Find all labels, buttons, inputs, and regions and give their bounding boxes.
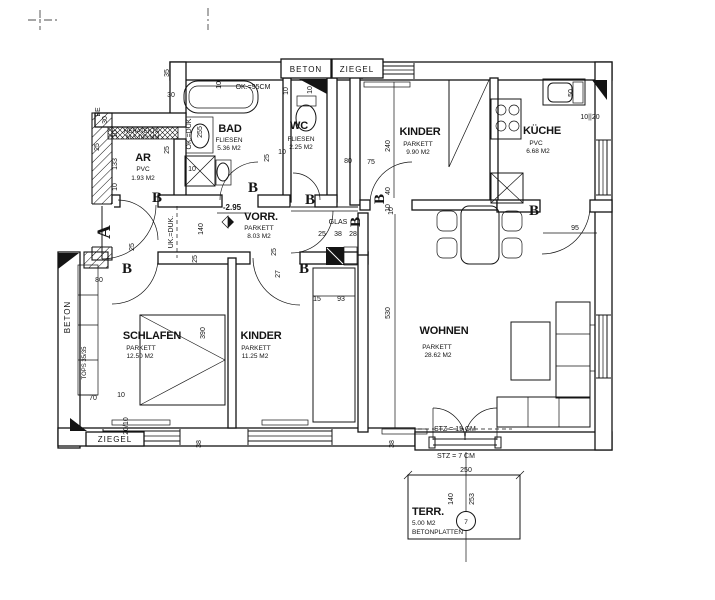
- wall: [170, 62, 186, 115]
- wall-material-label: TOPS 35/35: [82, 346, 88, 380]
- annotation-ok-duk: OK.=DUK: [186, 118, 193, 149]
- wall-material-label: BETON: [290, 65, 322, 74]
- annotation-glas: GLAS: [329, 219, 348, 226]
- coffee-table: [511, 322, 550, 380]
- dim-label: 255: [197, 126, 204, 138]
- bed: [313, 268, 355, 422]
- wall: [590, 200, 612, 212]
- dim-label: 38: [334, 231, 342, 238]
- level-marker-icon: [228, 216, 234, 228]
- wall: [358, 252, 368, 432]
- dim-label: 25: [192, 255, 199, 263]
- dim-label: 10: [278, 149, 286, 156]
- room-floor: PVC: [136, 166, 150, 173]
- chair: [437, 238, 457, 258]
- radiator: [262, 420, 308, 425]
- door-arc-glas: [291, 211, 333, 253]
- room-name: BAD: [218, 123, 241, 135]
- wall: [360, 200, 370, 210]
- dim-label: 27: [275, 270, 282, 278]
- wall: [158, 195, 222, 207]
- annotation-stz15: STZ = 15 CM: [434, 426, 476, 433]
- window-wohnen: [596, 315, 611, 378]
- dim-label: 30: [167, 92, 175, 99]
- dim-label: 80: [95, 277, 103, 284]
- window-kinder: [248, 429, 332, 445]
- dim-label: 80: [344, 158, 352, 165]
- room-floor: PARKETT: [244, 225, 274, 232]
- dim-label: 133: [112, 158, 119, 170]
- room-area: 8.03 M2: [247, 233, 271, 240]
- door-label: B: [122, 261, 132, 277]
- dim-label: 140: [448, 493, 455, 505]
- room-name: WC: [290, 120, 308, 132]
- room-floor: PARKETT: [126, 345, 156, 352]
- wall-brick-hatched: [84, 252, 108, 268]
- wall-material-label: ZIEGEL: [340, 65, 374, 74]
- room-name: KINDER: [400, 126, 441, 138]
- burner: [509, 105, 519, 115]
- dim-label: 530: [385, 307, 392, 319]
- wall-material-label: BETON: [63, 301, 72, 333]
- room-area: 28.62 M2: [424, 352, 451, 359]
- window-kueche: [596, 140, 611, 195]
- dim-label: 50: [568, 89, 575, 97]
- dim-label: 240: [385, 140, 392, 152]
- bidet: [217, 163, 229, 181]
- burner: [509, 121, 519, 131]
- floor-plan-drawing: BETON ZIEGEL ZIEGEL BETON TOPS 35/35 BE …: [0, 0, 715, 600]
- dim-label: 10: [216, 81, 223, 89]
- floor-plan-page: BETON ZIEGEL ZIEGEL BETON TOPS 35/35 BE …: [0, 0, 715, 600]
- radiator: [112, 420, 170, 425]
- room-floor: PARKETT: [241, 345, 271, 352]
- room-floor: FLIESEN: [287, 136, 314, 143]
- dim-label: 25: [264, 154, 271, 162]
- dim-label: 10: [283, 87, 290, 95]
- door-arc-schlafen: [112, 258, 158, 304]
- room-floor: FLIESEN: [215, 137, 242, 144]
- wall: [58, 252, 80, 448]
- room-floor: PVC: [529, 140, 543, 147]
- dim-label: 253: [469, 493, 476, 505]
- wall-material-label: BE: [95, 107, 102, 117]
- room-area: 6.68 M2: [526, 148, 550, 155]
- annotation-level: -2.95: [223, 203, 242, 212]
- dim-label: 10: [112, 130, 119, 138]
- room-name: KÜCHE: [523, 124, 561, 137]
- room-floor: BETONPLATTEN: [412, 529, 463, 536]
- room-name: TERR.: [412, 506, 444, 518]
- dim-label: 28: [349, 231, 357, 238]
- dim-label: 10: [188, 166, 196, 173]
- dim-label: 10: [112, 183, 119, 191]
- chair: [502, 211, 522, 231]
- terrace-number: 7: [464, 519, 468, 526]
- door-label: B: [305, 192, 315, 208]
- wall: [228, 258, 236, 428]
- dim-label: 10: [388, 207, 395, 215]
- room-area: 9.90 M2: [406, 149, 430, 156]
- room-area: 2.25 M2: [289, 144, 313, 151]
- sofa: [556, 302, 590, 398]
- door-label: B: [348, 217, 364, 227]
- door-label: B: [299, 261, 309, 277]
- dim-label: 40: [385, 187, 392, 195]
- insulation-label: M 3 100 MM: [126, 135, 159, 141]
- dim-label: 10||20: [580, 114, 599, 121]
- dim-label: 10: [307, 86, 314, 94]
- dim-label: 38: [389, 440, 396, 448]
- dim-label: 75: [367, 159, 375, 166]
- wall: [315, 195, 337, 207]
- room-area: 5.00 M2: [412, 520, 436, 527]
- dim-label: 25: [94, 143, 101, 151]
- wall: [258, 195, 290, 207]
- radiator: [590, 325, 595, 371]
- annotation-stz7: STZ = 7 CM: [437, 453, 475, 460]
- dim-label: 25: [164, 146, 171, 154]
- dim-label: 25: [129, 243, 136, 251]
- dim-label: 38: [196, 440, 203, 448]
- dim-label: 70: [89, 395, 97, 402]
- sofa: [497, 397, 590, 427]
- chair: [502, 238, 522, 258]
- wardrobe-diagonal: [449, 80, 489, 167]
- room-area: 11.25 M2: [242, 353, 269, 360]
- wall: [350, 62, 360, 205]
- wall-material-label: ZIEGEL: [98, 435, 132, 444]
- dim-label: 250: [460, 467, 472, 474]
- room-area: 12.50 M2: [126, 353, 153, 360]
- dim-label: 15: [313, 296, 321, 303]
- room-name: AR: [135, 152, 151, 164]
- wall: [412, 200, 497, 210]
- room-name: KINDER: [241, 330, 282, 342]
- dim-label: 10: [117, 392, 125, 399]
- room-area: 5.36 M2: [217, 145, 241, 152]
- dining-table: [461, 206, 499, 264]
- door-arc-ar: [118, 200, 158, 240]
- wall: [327, 78, 337, 202]
- level-marker-icon: [222, 216, 228, 228]
- room-floor: PARKETT: [403, 141, 433, 148]
- wall-niche: [78, 265, 98, 395]
- dim-label: 140: [198, 223, 205, 235]
- dim-label: 95: [571, 225, 579, 232]
- room-floor: PARKETT: [422, 344, 452, 351]
- door-label: B: [248, 180, 258, 196]
- room-name: WOHNEN: [420, 325, 469, 337]
- dim-label: 390: [200, 327, 207, 339]
- door-label-entrance: A: [94, 225, 115, 239]
- radiator: [364, 82, 410, 87]
- door-label: B: [529, 203, 539, 219]
- room-name: SCHLAFEN: [123, 330, 182, 342]
- dim-label: 35: [164, 69, 171, 77]
- wall: [174, 139, 186, 201]
- bed: [140, 315, 225, 405]
- bed-fold: [140, 360, 225, 405]
- annotation-tub-height: OK.=95CM: [236, 84, 271, 91]
- dim-label: 25: [318, 231, 326, 238]
- dim-label: 20/10: [123, 417, 130, 435]
- annotation-uk-duk: UK.=DUK.: [168, 216, 175, 249]
- door-arc-kinder: [253, 258, 300, 305]
- door-arc-kueche: [542, 206, 590, 254]
- dim-label: 93: [337, 296, 345, 303]
- interior-walls: [112, 62, 612, 432]
- dim-label: 30: [102, 116, 109, 124]
- room-name: VORR.: [244, 211, 278, 223]
- chair: [437, 211, 457, 231]
- door-label: B: [152, 190, 162, 206]
- room-area: 1.93 M2: [131, 175, 155, 182]
- toilet-tank: [297, 96, 316, 106]
- dim-label: 25: [271, 248, 278, 256]
